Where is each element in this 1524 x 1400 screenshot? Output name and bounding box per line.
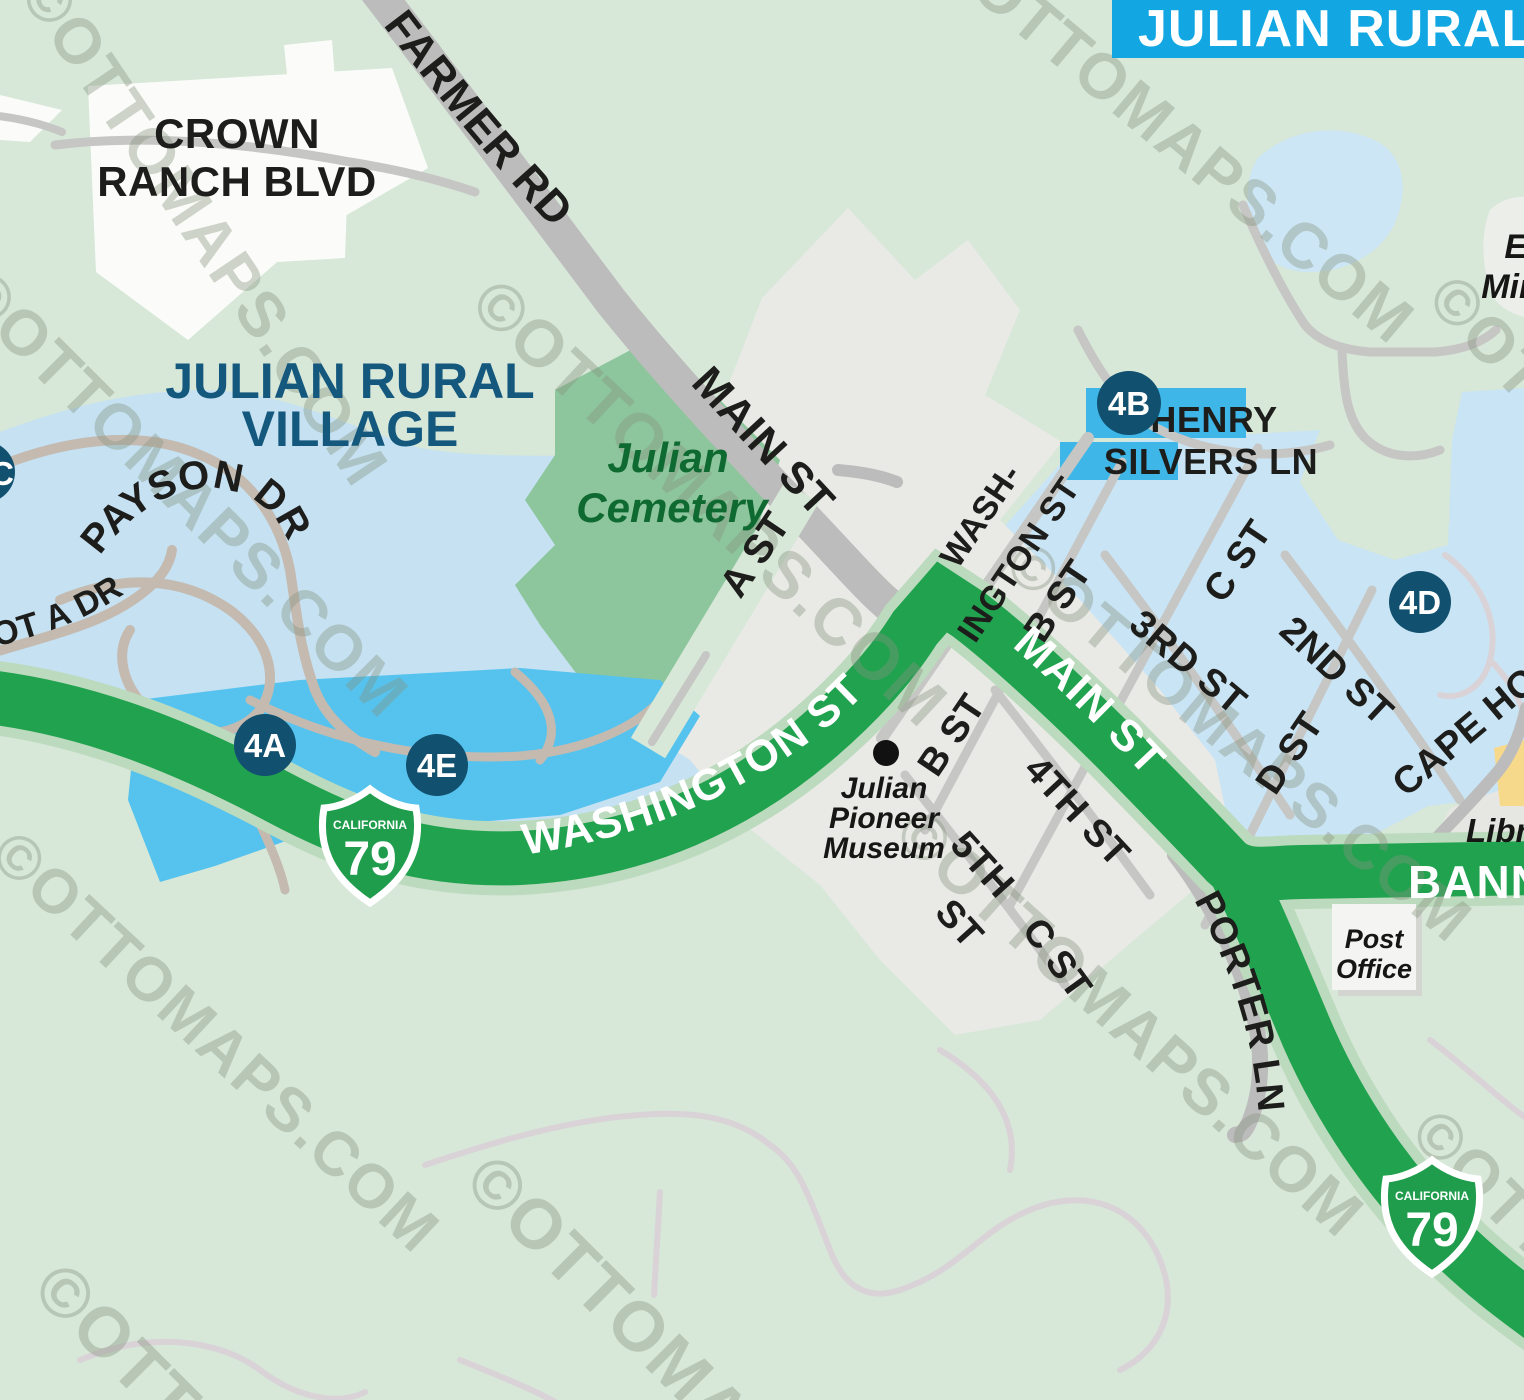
cemetery-label-1: Julian	[607, 434, 728, 481]
banner-rd-label: BANN	[1408, 856, 1524, 908]
library-label: Libra	[1466, 812, 1524, 849]
julian-rural-village-map: ©OTTOMAPS.COM ©OTTOMAPS.COM ©OTTOMAPS.CO…	[0, 0, 1524, 1400]
zone-badge-4b: 4B	[1097, 371, 1161, 435]
zone-badge-4b-label: 4B	[1108, 385, 1150, 422]
museum-label-1: Julian	[841, 772, 928, 805]
zone-badge-4c-label: C	[0, 455, 14, 492]
crown-ranch-label-1: CROWN	[154, 110, 320, 157]
shield-number: 79	[1405, 1204, 1458, 1257]
museum-label-3: Museum	[823, 832, 945, 865]
mining-label-2: Minin	[1481, 268, 1524, 306]
museum-label-2: Pioneer	[829, 802, 941, 835]
henry-silvers-label-1: HENRY	[1150, 399, 1277, 440]
mining-label-1: Ea	[1504, 228, 1524, 266]
zone-badge-4a-label: 4A	[244, 727, 286, 764]
post-office-label-2: Office	[1336, 954, 1412, 984]
region-title-line2: VILLAGE	[242, 401, 459, 457]
post-office-label-1: Post	[1345, 924, 1405, 954]
zone-badge-4a: 4A	[234, 714, 296, 776]
shield-state-label: CALIFORNIA	[1395, 1189, 1469, 1203]
title-banner-text: JULIAN RURAL	[1138, 0, 1524, 58]
zone-badge-4e: 4E	[406, 734, 468, 796]
shield-number: 79	[343, 833, 396, 886]
henry-silvers-label-2: SILVERS LN	[1104, 441, 1318, 482]
title-banner: JULIAN RURAL	[1112, 0, 1524, 58]
shield-state-label: CALIFORNIA	[333, 818, 407, 832]
museum-dot	[873, 740, 899, 766]
zone-badge-4d: 4D	[1389, 571, 1451, 633]
map-canvas: ©OTTOMAPS.COM ©OTTOMAPS.COM ©OTTOMAPS.CO…	[0, 0, 1524, 1400]
crown-ranch-label-2: RANCH BLVD	[97, 158, 377, 205]
zone-badge-4e-label: 4E	[417, 747, 457, 784]
zone-badge-4d-label: 4D	[1399, 584, 1441, 621]
cemetery-label-2: Cemetery	[576, 484, 770, 531]
